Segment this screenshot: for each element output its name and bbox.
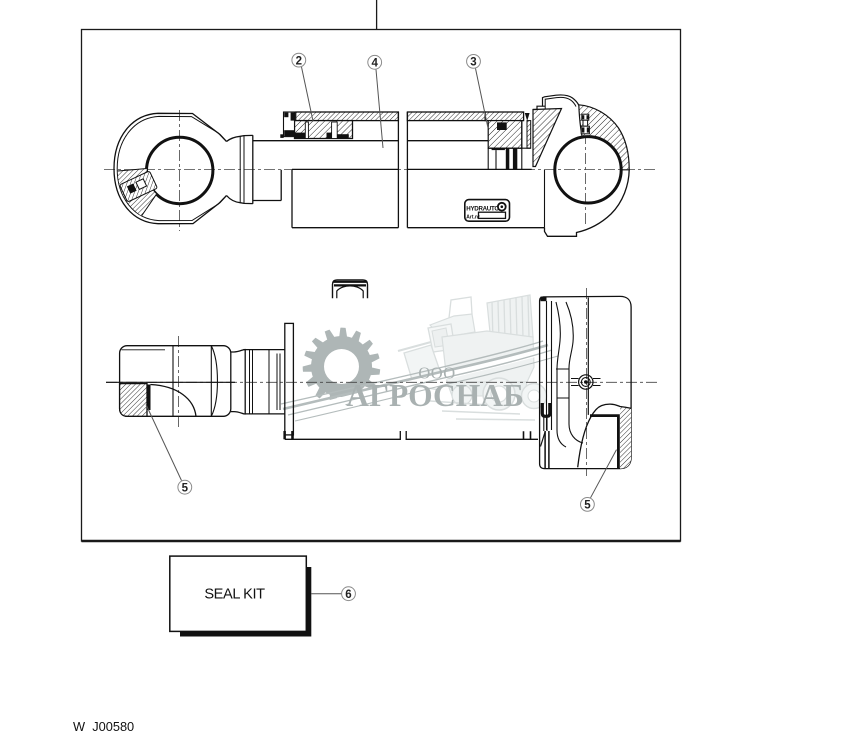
svg-text:4: 4: [371, 58, 378, 70]
svg-text:5: 5: [584, 500, 591, 512]
svg-text:W_J00580: W_J00580: [73, 719, 134, 731]
svg-text:HYDRAUTO: HYDRAUTO: [466, 205, 499, 212]
svg-text:3: 3: [470, 57, 476, 69]
svg-text:6: 6: [345, 589, 351, 601]
svg-text:5: 5: [182, 482, 189, 494]
svg-text:SEAL KIT: SEAL KIT: [204, 586, 265, 602]
svg-text:2: 2: [296, 55, 302, 67]
svg-text:АГРОСНАБ: АГРОСНАБ: [346, 378, 524, 413]
